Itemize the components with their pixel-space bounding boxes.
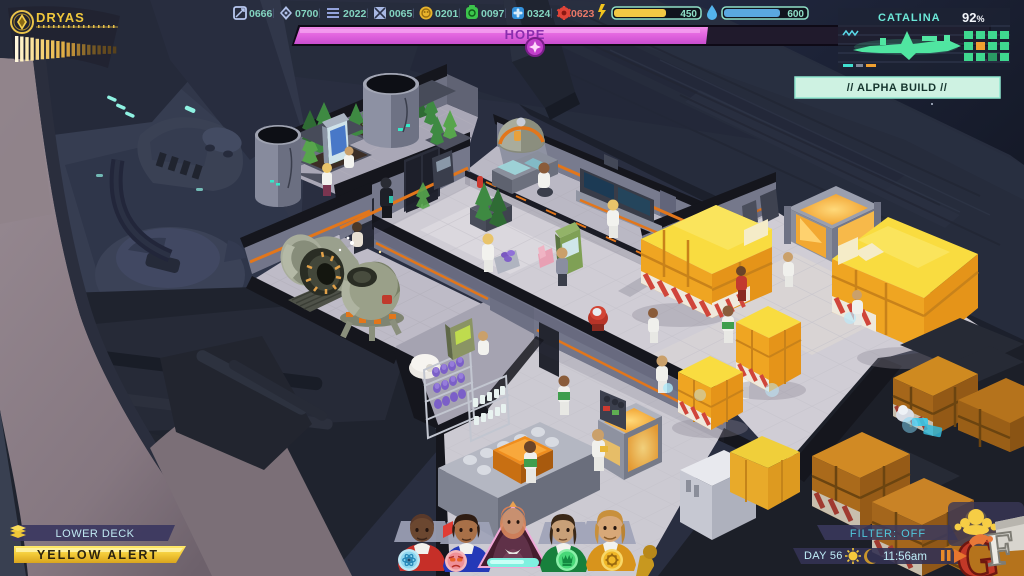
svg-text:DAY 56: DAY 56	[804, 550, 843, 562]
svg-text:0324: 0324	[527, 8, 551, 20]
svg-text:11:56am: 11:56am	[883, 551, 927, 563]
svg-text:0201: 0201	[435, 8, 459, 20]
svg-text:|: |	[412, 7, 415, 19]
svg-text:0700: 0700	[295, 8, 319, 20]
svg-text:YELLOW ALERT: YELLOW ALERT	[37, 548, 159, 562]
svg-text:// ALPHA BUILD //: // ALPHA BUILD //	[847, 82, 948, 94]
svg-text:0623: 0623	[571, 8, 595, 20]
svg-text:CATALINA: CATALINA	[878, 12, 941, 24]
svg-text:|: |	[550, 7, 553, 19]
svg-text:|: |	[318, 7, 321, 19]
svg-text:|: |	[504, 7, 507, 19]
svg-text:0097: 0097	[481, 8, 505, 20]
svg-text:|: |	[458, 7, 461, 19]
svg-text:600: 600	[787, 9, 804, 20]
svg-text:|: |	[366, 7, 369, 19]
svg-text:|: |	[272, 7, 275, 19]
svg-text:LOWER DECK: LOWER DECK	[56, 528, 135, 540]
svg-text:450: 450	[680, 9, 697, 20]
svg-text:0065: 0065	[389, 8, 413, 20]
svg-text:FILTER: OFF: FILTER: OFF	[850, 528, 926, 540]
svg-text:DRYAS: DRYAS	[36, 10, 85, 25]
svg-text:2022: 2022	[343, 8, 367, 20]
svg-text:0666: 0666	[249, 8, 273, 20]
